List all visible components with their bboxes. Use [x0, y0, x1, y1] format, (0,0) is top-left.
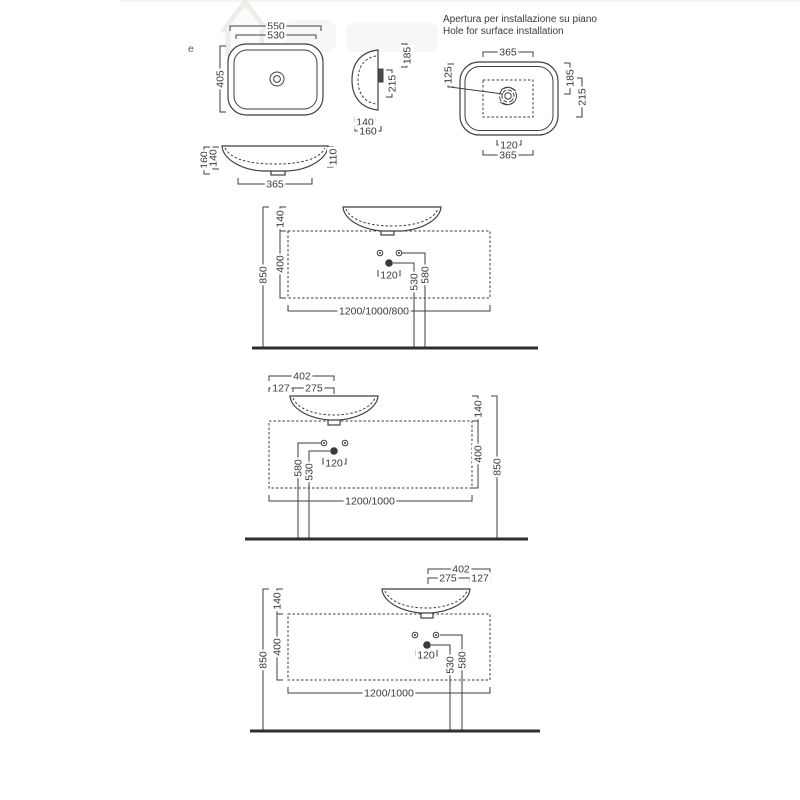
dim-label-580: 580	[420, 266, 432, 284]
dim-label-580: 580	[457, 651, 469, 669]
dim-label-365-top: 365	[499, 47, 517, 59]
drain-hole	[385, 259, 393, 267]
dim-label-215: 215	[577, 88, 589, 106]
technical-drawing-page: e 550 530 405	[0, 0, 800, 800]
faucet-hole-right-center	[344, 442, 346, 444]
dim-label-850: 850	[258, 266, 270, 284]
side-view-drawing: 185 215 140 160	[352, 44, 414, 138]
dim-label-125: 125	[443, 66, 455, 84]
basin-outer-rim	[228, 44, 323, 115]
dim-label-405: 405	[215, 70, 227, 88]
hole-template-drawing: Apertura per installazione su piano Hole…	[442, 14, 597, 162]
dim-label-120: 120	[380, 270, 398, 282]
dim-label-275: 275	[305, 383, 323, 395]
front-view-drawing: 160 140 110 365	[198, 146, 340, 191]
faucet-hole-left-center	[323, 442, 325, 444]
dim-label-530: 530	[304, 463, 316, 481]
dim-label-185: 185	[402, 47, 414, 65]
dim-label-widths: 1200/1000	[345, 496, 395, 508]
dim-label-widths: 1200/1000	[364, 688, 414, 700]
dim-label-850: 850	[258, 651, 270, 669]
faucet-hole-left-center	[414, 634, 416, 636]
countertop-outer-rim	[460, 62, 558, 135]
dim-label-530: 530	[267, 30, 285, 42]
dim-label-400: 400	[275, 255, 287, 273]
installation-diagram-center: 140 400 850 530 580 120 1200/1000/800	[252, 207, 538, 348]
fixing-clip	[378, 69, 383, 82]
dim-label-185: 185	[565, 69, 577, 87]
dim-label-120: 120	[417, 650, 435, 662]
dim-label-365-bottom: 365	[499, 150, 517, 162]
drain-hole	[330, 447, 338, 455]
dim-label-127: 127	[471, 573, 489, 585]
drawing-canvas: e 550 530 405	[0, 0, 800, 800]
section-title-english: Hole for surface installation	[443, 26, 564, 37]
faucet-hole-right-center	[435, 634, 437, 636]
faucet-hole-right-center	[398, 252, 400, 254]
dim-label-275: 275	[439, 573, 457, 585]
dim-label-850: 850	[492, 458, 504, 476]
installation-diagram-left: 402 127 275 140 400 850 580 530 120 1200…	[245, 370, 528, 539]
dim-label-120: 120	[325, 458, 343, 470]
basin-side-outline	[352, 50, 378, 110]
dim-label-140: 140	[275, 210, 287, 228]
dim-label-140: 140	[473, 400, 485, 418]
installation-diagram-right: 402 275 127 140 400 850 530 580 120 1200…	[250, 563, 540, 731]
dim-label-127: 127	[272, 383, 290, 395]
dim-label-widths: 1200/1000/800	[339, 306, 409, 318]
dim-label-365: 365	[266, 179, 284, 191]
watermark-blob	[346, 22, 438, 52]
section-title-italian: Apertura per installazione su piano	[443, 14, 597, 25]
watermark-letter: e	[188, 43, 194, 55]
basin-front-outline	[343, 207, 441, 231]
dim-label-215: 215	[387, 75, 399, 93]
dim-label-402: 402	[293, 371, 311, 383]
dim-label-110: 110	[328, 148, 340, 165]
faucet-hole-left-center	[379, 252, 381, 254]
dim-label-400: 400	[272, 638, 284, 656]
dim-label-140: 140	[208, 149, 220, 167]
dim-label-530: 530	[445, 656, 457, 674]
dim-label-140: 140	[272, 592, 284, 610]
dim-label-400: 400	[473, 445, 485, 463]
dim-label-160: 160	[359, 126, 377, 138]
drain-hole	[423, 641, 431, 649]
